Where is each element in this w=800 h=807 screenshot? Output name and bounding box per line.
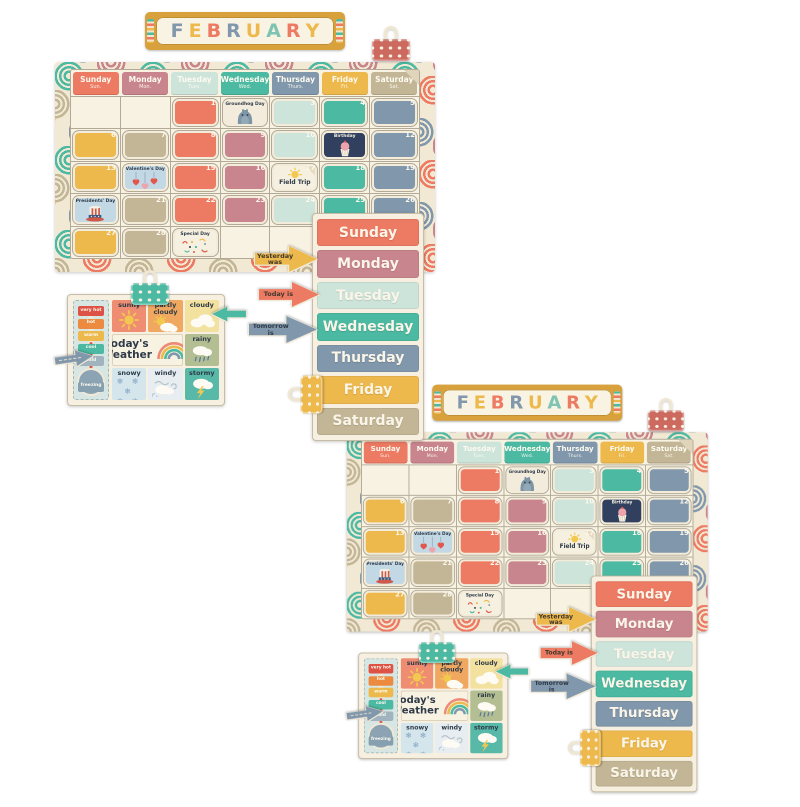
thermometer-level: warm [78,331,104,341]
date-number: 9 [542,498,547,506]
calendar-cell: 15 [457,527,503,557]
date-number: 19 [405,164,415,172]
calendar-cell: 21 [121,194,170,225]
day-header-friday: FridayFri. [600,441,644,463]
calendar-cell: 1 [171,97,220,128]
day-header-sunday: SundaySun. [363,441,407,463]
date-number: 21 [156,196,166,204]
birthday-sticker: Birthday [601,498,644,524]
date-number: 22 [490,560,499,568]
stormy-icon [185,377,219,401]
groundhog-icon [508,475,547,492]
today-arrow-label: Today is [541,650,576,656]
sunny-icon [112,309,146,333]
yesterday-arrow-label: Yesterday was [255,253,293,266]
thermometer-level-label: very hot [371,667,391,671]
day-strip-label: Thursday [609,706,678,721]
presidents-sticker: Presidents' Day [364,560,407,586]
weather-grid: sunnypartly cloudycloudyToday'sWeatherra… [112,300,219,400]
day-strips-panel: SundayMondayTuesdayWednesdayThursdayFrid… [591,576,697,793]
day-header-abbr: Tues. [457,454,501,459]
calendar-cell: 19 [646,527,692,557]
date-number: 19 [679,529,688,537]
valentine-icon [413,537,452,555]
banner-letter: A [266,22,281,41]
thermometer-level: very hot [369,664,394,674]
day-header-tuesday: TuesdayTues. [171,72,217,95]
presidents-icon [366,568,405,585]
date-number: 3 [310,99,315,107]
calendar-cell: 3 [551,465,597,495]
banner-letter: R [509,394,523,412]
date-number: 28 [156,229,166,237]
calendar-cell: 23 [504,558,550,588]
date-number: 18 [355,164,365,172]
calendar-cell: Field Trip17 [551,527,597,557]
day-header-abbr: Wed. [221,85,269,90]
calendar-cell: 28 [121,227,170,258]
date-number: 7 [161,131,166,139]
calendar-cell: 21 [409,558,455,588]
weather-tile-stormy: stormy [185,368,219,400]
day-strip-friday: Friday [596,731,693,757]
calendar-cell: 1 [457,465,503,495]
date-number: 1 [211,99,216,107]
day-strip-tuesday: Tuesday [317,282,419,309]
calendar-cell: 9 [221,129,270,160]
day-header-friday: FridayFri. [322,72,368,95]
calendar-cell: 15 [171,162,220,193]
yesterday-arrow-label: Yesterday was [537,613,573,625]
day-strip-sunday: Sunday [596,581,693,607]
tomorrow-arrow: Tomorrow is [249,315,317,344]
snowy-icon: ❄ ❄ ❄❄ ❄ [112,377,146,401]
calendar-cell: 23 [221,194,270,225]
day-strip-thursday: Thursday [596,701,693,727]
day-header-abbr: Wed. [504,454,550,459]
day-strip-tuesday: Tuesday [596,641,693,667]
day-strip-label: Saturday [610,766,678,781]
day-header-full: Thursday [553,446,597,453]
day-strip-label: Sunday [616,587,671,602]
date-number: 10 [306,131,316,139]
binder-clip-body [372,39,410,61]
groundhog-sticker: Groundhog Day [223,99,268,126]
calendar-cell: Presidents' Day [362,558,408,588]
special-icon [175,237,216,255]
day-header-abbr: Fri. [322,85,368,90]
day-strip-monday: Monday [317,250,419,277]
binder-clip-body [580,730,601,766]
special-sticker: Special Day [459,590,502,616]
day-strip-label: Monday [337,256,399,272]
binder-clip-body [419,642,455,663]
special-icon [460,598,499,615]
date-number: 28 [443,590,452,598]
weather-tile-windy: windy [148,368,182,400]
date-number: 23 [537,560,546,568]
calendar-cell: 22 [171,194,220,225]
thermometer-level-label: hot [87,321,95,326]
day-header-wednesday: WednesdayWed. [504,441,550,463]
weather-tile-stormy: stormy [470,723,503,753]
day-header-full: Monday [410,446,454,453]
banner-letter: Y [306,22,320,41]
day-strip-label: Wednesday [323,319,413,335]
day-header-full: Thursday [272,76,318,84]
banner-letter: R [226,22,241,41]
day-strip-thursday: Thursday [317,345,419,372]
day-strip-wednesday: Wednesday [596,671,693,697]
valentine-sticker: Valentine's Day [411,529,454,555]
day-header-abbr: Fri. [600,454,644,459]
calendar-cell: Valentine's Day [121,162,170,193]
rainy-icon [185,343,219,367]
date-number: 25 [355,196,365,204]
date-number: 9 [261,131,266,139]
date-number: 5 [410,99,415,107]
day-header-abbr: Tues. [171,85,217,90]
calendar-cell: Special Day [171,227,220,258]
day-strip-label: Friday [621,736,667,751]
banner-letter: A [547,394,561,412]
thermometer-level: very hot [78,306,104,316]
day-header-row: SundaySun.MondayMon.TuesdayTues.Wednesda… [362,440,693,466]
snowflakes-icon: ❄ ❄ ❄❄ ❄ [112,377,146,401]
date-number: 1 [495,467,500,475]
banner-letter: B [207,22,221,41]
calendar-cell: Birthday [320,129,369,160]
thermometer-level: warm [369,688,394,698]
todays-weather-text: Today'sWeather [401,695,439,716]
day-strip-sunday: Sunday [317,219,419,246]
month-banner: FEBRUARY [145,12,345,50]
calendar-cell: 22 [457,558,503,588]
partly-icon [148,315,182,332]
binder-clip-handle [568,741,580,754]
month-banner-letters: FEBRUARY [156,17,334,45]
day-strip-label: Thursday [332,350,405,366]
calendar-cell: 3 [270,97,319,128]
groundhog-icon [225,108,266,126]
yesterday-arrow: Yesterday was [537,606,596,633]
day-header-abbr: Mon. [410,454,454,459]
todays-weather-text: Today'sWeather [112,339,152,361]
calendar-cell: Presidents' Day [71,194,120,225]
day-header-abbr: Sun. [363,454,407,459]
rainbow-icon [155,338,183,363]
date-number: 23 [256,196,266,204]
yesterday-arrow: Yesterday was [255,245,317,273]
banner-letter: U [528,394,543,412]
weather-tile-rainy: rainy [185,334,219,366]
day-strip-label: Monday [615,617,674,632]
date-number: 15 [490,529,499,537]
banner-letter: F [171,22,184,41]
today-arrow: Today is [541,640,598,666]
todays-weather-line2: Weather [112,349,152,361]
date-number: 17 [306,164,316,172]
day-header-abbr: Thurs. [272,85,318,90]
day-strip-label: Friday [344,382,393,398]
snowy-icon: ❄ ❄ ❄❄ ❄ [401,731,434,753]
thermometer-level-label: very hot [80,309,101,314]
day-header-full: Tuesday [171,76,217,84]
calendar-bulletin-set: SundaySun.MondayMon.TuesdayTues.Wednesda… [323,378,779,807]
calendar-cell: Valentine's Day [409,527,455,557]
day-header-monday: MondayMon. [122,72,168,95]
calendar-cell: Field Trip17 [270,162,319,193]
calendar-cell: 8 [171,129,220,160]
day-header-full: Sunday [363,446,407,453]
banner-letter: E [189,22,202,41]
day-header-sunday: SundaySun. [73,72,119,95]
tomorrow-arrow-label: Tomorrow is [531,680,570,692]
sticker-label: Field Trip [279,180,310,186]
day-header-full: Monday [122,76,168,84]
date-number: 21 [443,560,452,568]
weather-tile-snowy: snowy❄ ❄ ❄❄ ❄ [401,723,434,753]
day-strip-saturday: Saturday [317,408,419,435]
binder-clip-icon [568,730,601,766]
date-number: 26 [405,196,415,204]
day-header-row: SundaySun.MondayMon.TuesdayTues.Wednesda… [71,70,419,97]
thermometer-level: hot [369,676,394,686]
date-number: 12 [405,131,415,139]
banner-letter: F [457,394,469,412]
snowflakes-icon: ❄ ❄ ❄❄ ❄ [401,731,434,753]
binder-clip-handle [143,270,157,283]
date-number: 8 [211,131,216,139]
calendar-cell: 5 [646,465,692,495]
calendar-cell: 28 [409,589,455,619]
windy-icon [435,731,468,753]
windy-icon [148,377,182,401]
calendar-cell: 27 [362,589,408,619]
calendar-cell: 4 [320,97,369,128]
groundhog-sticker: Groundhog Day [506,467,549,493]
day-strip-label: Saturday [332,413,403,429]
presidents-icon [75,205,116,223]
weather-tile-rainy: rainy [470,691,503,721]
date-number: 27 [395,590,404,598]
thermometer-level: hot [78,319,104,329]
weather-tile-windy: windy [435,723,468,753]
calendar-cell [362,465,408,495]
date-number: 7 [447,498,452,506]
calendar-cell: Groundhog Day [221,97,270,128]
rainy-icon [470,699,503,721]
day-strip-label: Tuesday [614,646,675,661]
todays-weather-line2: Weather [401,705,439,716]
date-number: 12 [679,498,688,506]
weather-pointer-arrow [212,306,246,322]
day-strip-friday: Friday [317,376,419,403]
date-number: 4 [360,99,365,107]
day-header-thursday: ThursdayThurs. [272,72,318,95]
thermometer-level: freezing [78,382,104,392]
day-strip-monday: Monday [596,611,693,637]
date-number: 5 [684,467,689,475]
calendar-cell: 10 [551,496,597,526]
date-number: 24 [306,196,316,204]
date-number: 13 [106,164,116,172]
day-header-abbr: Sun. [73,85,119,90]
calendar-cell [71,97,120,128]
day-header-full: Tuesday [457,446,501,453]
stormy-icon [470,731,503,753]
day-header-monday: MondayMon. [410,441,454,463]
date-number: 13 [395,529,404,537]
date-number: 3 [589,467,594,475]
binder-clip-icon [288,376,323,414]
calendar-cell: 6 [71,129,120,160]
banner-letter: U [246,22,261,41]
date-number: 18 [632,529,641,537]
day-strip-label: Sunday [339,225,397,241]
day-strip-saturday: Saturday [596,760,693,786]
presidents-sticker: Presidents' Day [73,196,118,223]
weather-grid: sunnypartly cloudycloudyToday'sWeatherra… [401,658,503,753]
birthday-sticker: Birthday [322,131,367,158]
day-header-thursday: ThursdayThurs. [553,441,597,463]
day-strip-label: Tuesday [336,288,400,304]
calendar-cell: 12 [646,496,692,526]
date-number: 6 [400,498,405,506]
day-header-abbr: Sat. [371,85,417,90]
weather-pointer-arrow [496,664,528,679]
date-number: 6 [111,131,116,139]
date-number: 16 [256,164,266,172]
binder-clip-icon [648,398,684,431]
binder-clip-icon [372,26,410,61]
calendar-cell: 18 [320,162,369,193]
calendar-cell [121,97,170,128]
banner-letter: R [566,394,580,412]
banner-letter: Y [585,394,598,412]
special-sticker: Special Day [173,229,218,256]
tomorrow-arrow: Tomorrow is [531,673,596,701]
binder-clip-handle [430,630,443,642]
date-number: 8 [495,498,500,506]
date-number: 25 [632,560,641,568]
banner-letter: R [286,22,301,41]
day-header-full: Friday [322,76,368,84]
binder-clip-handle [288,388,301,402]
date-number: 10 [585,498,594,506]
calendar-cell: 4 [599,465,645,495]
todays-weather-tile: Today'sWeather [401,691,468,721]
month-banner-letters: FEBRUARY [443,389,612,416]
calendar-cell: Groundhog Day [504,465,550,495]
calendar-cell: 9 [504,496,550,526]
calendar-cell: 12 [370,129,419,160]
valentine-icon [125,172,166,191]
date-number: 26 [679,560,688,568]
day-header-abbr: Sat. [647,454,691,459]
binder-clip-body [131,283,169,305]
calendar-cell: 7 [409,496,455,526]
banner-letter: E [474,394,486,412]
sticker-label: Field Trip [560,544,590,550]
partly-icon [435,673,468,689]
birthday-icon [324,140,365,158]
calendar-cell: 13 [71,162,120,193]
calendar-cell [409,465,455,495]
day-header-abbr: Mon. [122,85,168,90]
day-header-full: Wednesday [504,446,550,453]
thermometer-level-label: freezing [371,738,391,742]
day-header-abbr: Thurs. [553,454,597,459]
tomorrow-arrow-label: Tomorrow is [249,323,290,336]
thermometer-level-label: warm [374,690,387,694]
date-number: 27 [106,229,116,237]
calendar-cell: 16 [221,162,270,193]
date-number: 16 [537,529,546,537]
day-header-full: Wednesday [221,76,269,84]
binder-clip-handle [384,26,398,39]
calendar-cell: 5 [370,97,419,128]
thermometer-level-label: hot [377,678,385,682]
day-header-full: Friday [600,446,644,453]
valentine-sticker: Valentine's Day [123,164,168,191]
binder-clip-icon [419,630,455,663]
day-header-full: Saturday [371,76,417,84]
today-arrow-label: Today is [259,291,296,298]
thermometer-level-label: warm [84,334,98,339]
date-number: 22 [206,196,216,204]
calendar-cell: 19 [370,162,419,193]
day-strip-label: Wednesday [601,676,687,691]
month-banner: FEBRUARY [432,385,622,421]
binder-clip-body [301,376,323,414]
calendar-cell: 7 [121,129,170,160]
date-number: 17 [585,529,594,537]
date-number: 4 [637,467,642,475]
binder-clip-body [648,410,684,431]
day-header-full: Sunday [73,76,119,84]
today-arrow: Today is [259,281,319,308]
thermometer-level: freezing [369,736,394,746]
binder-clip-icon [131,270,169,305]
birthday-icon [603,506,642,523]
day-header-full: Saturday [647,446,691,453]
date-number: 15 [206,164,216,172]
calendar-cell: 10 [270,129,319,160]
binder-clip-handle [659,398,672,410]
thermometer-level-label: freezing [81,384,102,389]
todays-weather-tile: Today'sWeather [112,334,183,366]
calendar-cell: 8 [457,496,503,526]
day-header-wednesday: WednesdayWed. [221,72,269,95]
calendar-cell: 6 [362,496,408,526]
date-number: 24 [585,560,594,568]
calendar-cell: 27 [71,227,120,258]
calendar-cell: Birthday [599,496,645,526]
day-strips-panel: SundayMondayTuesdayWednesdayThursdayFrid… [312,213,424,441]
day-strip-wednesday: Wednesday [317,313,419,340]
sunny-icon [401,666,434,688]
set-copy-2: SundaySun.MondayMon.TuesdayTues.Wednesda… [323,378,779,807]
calendar-cell: Special Day [457,589,503,619]
weather-tile-snowy: snowy❄ ❄ ❄❄ ❄ [112,368,146,400]
day-header-tuesday: TuesdayTues. [457,441,501,463]
calendar-cell: 16 [504,527,550,557]
rainbow-icon [442,694,468,718]
calendar-cell: 18 [599,527,645,557]
calendar-cell: 13 [362,527,408,557]
banner-letter: B [491,394,505,412]
